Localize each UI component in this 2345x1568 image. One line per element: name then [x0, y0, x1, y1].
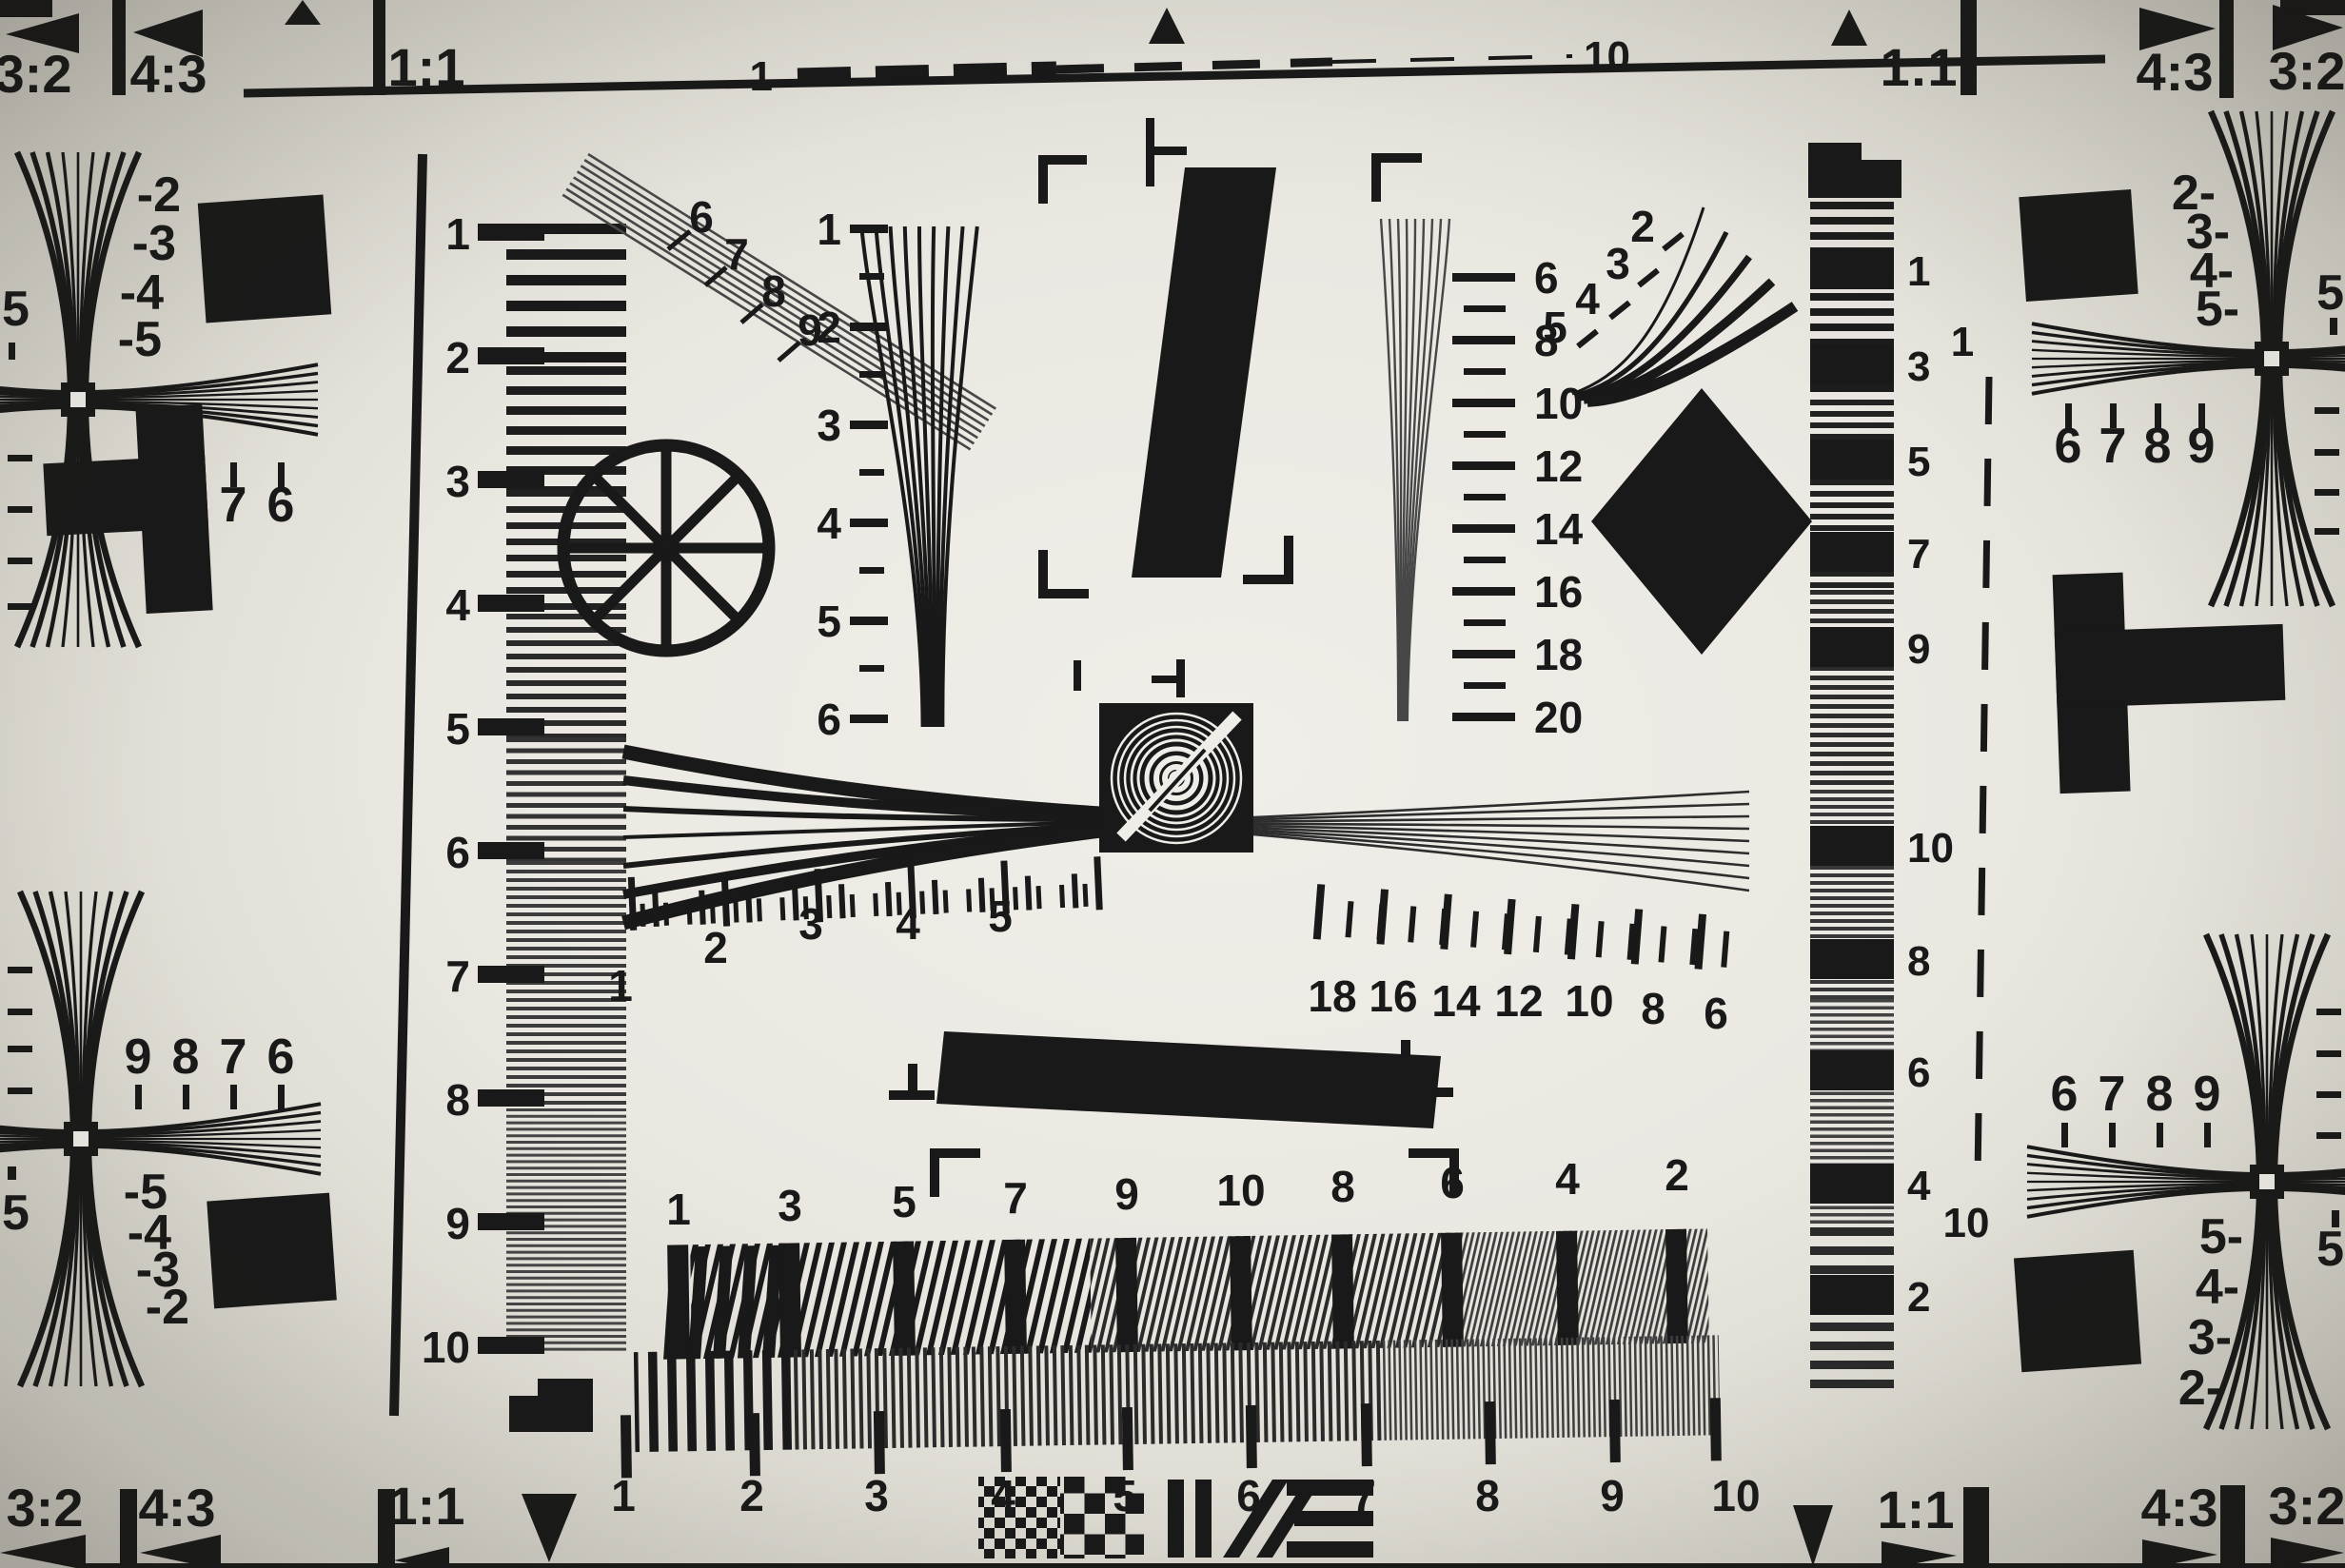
scale-end: 10	[1584, 33, 1630, 80]
ruler-number: 3	[445, 457, 470, 506]
left-vertical-ruler: 1 2 3 4 5 6 7 8 9 10	[394, 154, 593, 1432]
wedge-label: -5	[118, 312, 162, 367]
fan-label: 3	[1606, 239, 1630, 288]
bottom-scale-bottom-labels: 1 2 3 4 5 6 7 8 9 10	[611, 1471, 1760, 1520]
row-number: 6	[267, 478, 295, 533]
triangle-down-icon	[1793, 1505, 1833, 1566]
aspect-label: 4:3	[2141, 1478, 2218, 1538]
ruler-number: 1	[445, 209, 470, 259]
t-block	[2053, 567, 2289, 794]
scale-number: 10	[1534, 379, 1583, 428]
curved-fan: 2 3 4 5	[1543, 202, 1795, 402]
strip-number: 7	[1907, 531, 1930, 578]
bottom-scale-top-labels: 1 3 5 7 9 10 8 6 4 2	[666, 1150, 1689, 1234]
row-number: 8	[172, 1029, 200, 1085]
right-resolution-strip: 1 3 5 7 9 10 8 6 4 2	[1808, 143, 1954, 1399]
iso12233-test-chart: 3:2 4:3 1:1 1:1 4:3 3:2 1 10 -2 -3 -4 -5…	[0, 0, 2345, 1568]
svg-text:1: 1	[611, 1471, 636, 1520]
triangle-up-icon	[285, 0, 321, 25]
svg-text:10: 10	[1216, 1166, 1265, 1215]
ruler-number: 6	[445, 828, 470, 877]
ruler-number: 2	[703, 923, 728, 972]
scale-number: 1	[817, 205, 841, 254]
tilted-bar-vertical	[1132, 167, 1276, 578]
strip-number: 6	[1907, 1049, 1930, 1096]
svg-text:7: 7	[1003, 1173, 1028, 1223]
row-number: 7	[2099, 419, 2127, 474]
svg-text:8: 8	[1475, 1471, 1500, 1520]
strip-number: 9	[1907, 626, 1930, 673]
row-number: 7	[2099, 1067, 2126, 1122]
svg-text:2: 2	[739, 1471, 764, 1520]
svg-text:10: 10	[1711, 1471, 1760, 1520]
fan-label: 6	[689, 192, 714, 242]
scale-number: 16	[1534, 567, 1583, 617]
slanted-square	[2014, 1250, 2141, 1372]
row-number: 8	[2146, 1067, 2174, 1122]
left-edge-top: -2 -3 -4 -5 5 9 8 7 6	[0, 152, 331, 647]
row-number: 9	[2194, 1067, 2221, 1122]
row-number: 6	[2051, 1067, 2079, 1122]
scale-number: 12	[1534, 441, 1583, 491]
scale-number: 3	[817, 401, 841, 450]
ruler-number: 8	[445, 1075, 470, 1125]
ruler-number: 6	[1704, 989, 1728, 1038]
strip-number: 10	[1907, 825, 1954, 872]
ruler-number: 2	[445, 333, 470, 382]
aspect-label: 3:2	[7, 1478, 84, 1538]
aspect-label: 1:1	[1878, 1480, 1955, 1539]
svg-text:6: 6	[1440, 1158, 1465, 1207]
svg-text:2: 2	[1665, 1150, 1689, 1200]
dash-scale-bottom: 10	[1943, 1200, 1990, 1246]
row-number: 7	[220, 478, 247, 533]
diagonal-fan: 6 7 8 9	[562, 154, 995, 449]
svg-text:3: 3	[864, 1471, 889, 1520]
svg-text:9: 9	[1600, 1471, 1625, 1520]
slanted-square	[198, 195, 331, 323]
strip-number: 8	[1907, 938, 1930, 985]
wedge-label: -2	[137, 167, 181, 223]
fan-label: 5	[1543, 303, 1567, 352]
triangle-up-icon	[1149, 8, 1185, 44]
svg-text:8: 8	[1330, 1162, 1355, 1211]
ruler-number: 4	[445, 580, 470, 630]
strip-number: 4	[1907, 1163, 1931, 1209]
triangle-up-icon	[1831, 10, 1867, 46]
mid-tilted-bar	[889, 1031, 1454, 1197]
edge-number: 5	[2316, 1222, 2344, 1277]
aspect-label: 4:3	[2137, 42, 2214, 102]
aspect-label: 3:2	[2269, 41, 2345, 101]
aspect-label: 3:2	[0, 44, 71, 104]
fan-label: 2	[1630, 202, 1655, 251]
wedge-label: 4-	[2196, 1260, 2239, 1315]
wedge-label: -2	[146, 1280, 189, 1335]
row-number: 8	[2144, 419, 2172, 474]
scale-number: 4	[817, 499, 841, 548]
ruler-number: 7	[445, 951, 470, 1001]
ruler-number: 10	[422, 1323, 470, 1372]
ruler-number: 14	[1431, 976, 1481, 1026]
right-dash-scale: 1 10	[1943, 319, 1990, 1246]
ruler-number: 3	[798, 899, 823, 949]
row-number: 7	[220, 1029, 247, 1085]
triangle-down-icon	[522, 1494, 577, 1562]
arrow-left-icon	[140, 1535, 221, 1568]
bottom-resolution-bars	[618, 1228, 1722, 1478]
svg-text:3: 3	[778, 1181, 802, 1230]
ruler-number: 5	[988, 892, 1013, 941]
scale-number: 6	[817, 695, 841, 744]
aspect-label: 3:2	[2269, 1476, 2345, 1536]
strip-number: 1	[1907, 248, 1930, 295]
aspect-label: 1:1	[388, 1476, 465, 1536]
edge-number: 5	[2316, 265, 2344, 321]
row-number: 6	[2055, 419, 2082, 474]
edge-number: 5	[2, 1186, 30, 1241]
fan-label: 4	[1575, 274, 1600, 323]
scale-number: 14	[1534, 504, 1584, 554]
row-number: 9	[125, 1029, 152, 1085]
aspect-label: 4:3	[139, 1478, 216, 1538]
ruler-number: 10	[1565, 976, 1613, 1026]
spoked-circle	[563, 445, 769, 651]
strip-number: 3	[1907, 343, 1930, 390]
fan-label: 8	[761, 266, 786, 316]
right-edge-bottom: 6 7 8 9 5- 4- 3- 2- 5	[2014, 934, 2345, 1429]
strip-number: 2	[1907, 1274, 1930, 1321]
scale-start: 1	[750, 53, 773, 100]
checker-logo	[978, 1477, 1373, 1558]
horizontal-wedge-right	[1251, 792, 1749, 891]
ruler-number: 8	[1641, 984, 1665, 1033]
ruler-number: 4	[896, 899, 920, 949]
ruler-number: 12	[1494, 976, 1543, 1026]
scale-number: 20	[1534, 693, 1583, 742]
row-number: 9	[2188, 419, 2216, 474]
wedge-label: -3	[132, 216, 176, 271]
center-vertical-wedge	[861, 226, 977, 727]
scale-number: 5	[817, 597, 841, 646]
strip-number: 5	[1907, 439, 1930, 485]
wedge-label: 5-	[2196, 282, 2239, 337]
wedge-label: 3-	[2188, 1310, 2232, 1365]
dash-scale-top: 1	[1951, 319, 1974, 365]
slanted-square	[207, 1193, 337, 1309]
left-edge-bottom: 9 8 7 6 -5 -4 -3 -2 5	[0, 892, 337, 1386]
chart-canvas: 3:2 4:3 1:1 1:1 4:3 3:2 1 10 -2 -3 -4 -5…	[0, 0, 2345, 1568]
center-vertical-scale: 1 2 3 4 5 6	[817, 205, 888, 744]
scale-number: 18	[1534, 630, 1583, 679]
scale-number: 6	[1534, 253, 1559, 303]
center-target	[1099, 703, 1253, 853]
ruler-number: 1	[608, 961, 633, 1010]
scale-number: 2	[817, 303, 841, 352]
ruler-number: 5	[445, 704, 470, 754]
black-diamond	[1591, 388, 1812, 655]
wedge-label: 5-	[2199, 1209, 2243, 1264]
svg-text:1: 1	[666, 1185, 691, 1234]
svg-text:4: 4	[1555, 1154, 1580, 1204]
wedge-label: 2-	[2178, 1361, 2222, 1416]
right-fine-wedge	[1381, 219, 1449, 721]
svg-text:5: 5	[892, 1177, 916, 1226]
fan-label: 7	[724, 229, 749, 279]
ruler-number: 9	[445, 1199, 470, 1248]
arrow-left-icon	[0, 1535, 86, 1568]
row-number: 6	[267, 1029, 295, 1085]
svg-text:9: 9	[1114, 1169, 1139, 1219]
right-edge-top: 2- 3- 4- 5- 5 6 7 8 9	[2019, 111, 2345, 794]
aspect-label: 4:3	[130, 44, 207, 104]
ruler-number: 18	[1308, 971, 1356, 1021]
edge-number: 5	[2, 282, 30, 337]
ruler-number: 16	[1369, 971, 1417, 1021]
slanted-square	[2019, 189, 2138, 302]
